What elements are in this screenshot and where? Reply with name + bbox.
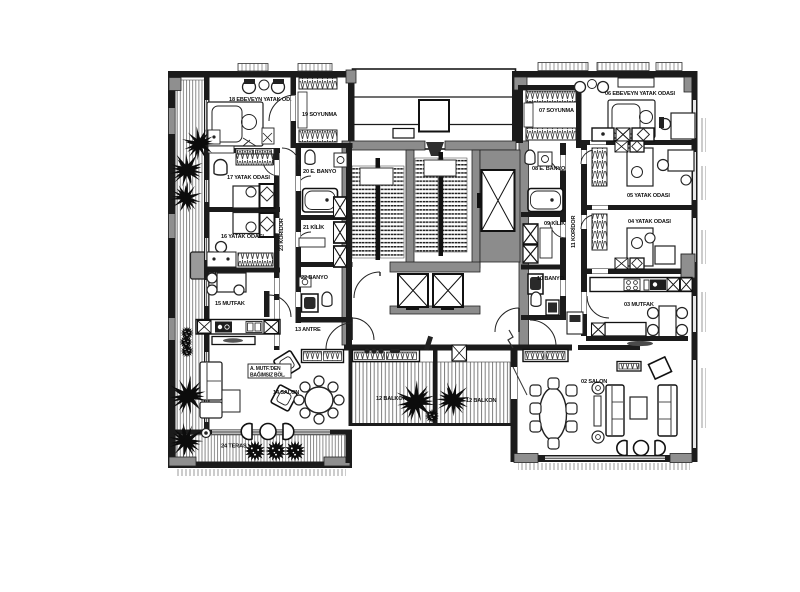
svg-text:22 BANYO: 22 BANYO xyxy=(301,275,329,281)
svg-text:23 KORİDOR: 23 KORİDOR xyxy=(278,218,285,251)
svg-text:12 BALKON: 12 BALKON xyxy=(466,398,496,404)
svg-text:03 MUTFAK: 03 MUTFAK xyxy=(624,302,654,308)
svg-text:17 YATAK ODASI: 17 YATAK ODASI xyxy=(227,175,270,181)
svg-text:10 BANYO: 10 BANYO xyxy=(537,276,565,282)
svg-text:19 SOYUNMA: 19 SOYUNMA xyxy=(302,112,337,118)
svg-text:04 YATAK ODASI: 04 YATAK ODASI xyxy=(628,219,671,225)
svg-text:13 ANTRE: 13 ANTRE xyxy=(295,327,321,333)
svg-text:08 E. BANYO: 08 E. BANYO xyxy=(532,166,566,172)
svg-text:07 SOYUNMA: 07 SOYUNMA xyxy=(539,108,574,114)
svg-text:14 SALON: 14 SALON xyxy=(273,390,299,396)
svg-text:18 EBEVEYN YATAK OD.: 18 EBEVEYN YATAK OD. xyxy=(229,97,292,103)
svg-text:02 SALON: 02 SALON xyxy=(581,379,607,385)
svg-text:A. MUTF.'DEN: A. MUTF.'DEN xyxy=(250,366,281,372)
svg-text:24 TERAS: 24 TERAS xyxy=(221,444,247,450)
svg-text:11 KORİDOR: 11 KORİDOR xyxy=(570,216,577,248)
svg-text:06 EBEVEYN YATAK ODASI: 06 EBEVEYN YATAK ODASI xyxy=(605,91,675,97)
svg-text:BAĞIMSIZ BÖL.: BAĞIMSIZ BÖL. xyxy=(250,371,286,379)
svg-text:05 YATAK ODASI: 05 YATAK ODASI xyxy=(627,193,670,199)
svg-text:21 KİLİK: 21 KİLİK xyxy=(303,224,324,231)
svg-text:16 YATAK ODASI: 16 YATAK ODASI xyxy=(221,234,264,240)
svg-text:15 MUTFAK: 15 MUTFAK xyxy=(215,301,245,307)
svg-text:09 KİLİK: 09 KİLİK xyxy=(544,220,565,227)
svg-text:12 BALKON: 12 BALKON xyxy=(376,396,406,402)
svg-text:20 E. BANYO: 20 E. BANYO xyxy=(303,169,337,175)
